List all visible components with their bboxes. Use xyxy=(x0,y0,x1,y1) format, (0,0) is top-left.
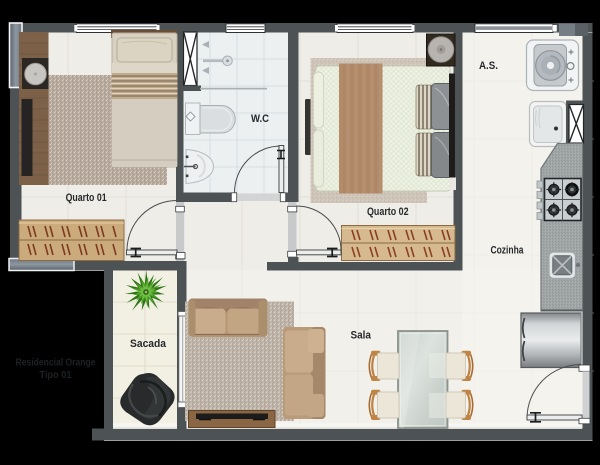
svg-text:Tipo 01: Tipo 01 xyxy=(40,370,72,381)
svg-text:Quarto 01: Quarto 01 xyxy=(66,192,107,204)
svg-text:Cozinha: Cozinha xyxy=(491,245,525,257)
svg-text:W.C: W.C xyxy=(251,113,269,125)
svg-text:Sacada: Sacada xyxy=(130,338,167,350)
svg-text:Residencial Orange: Residencial Orange xyxy=(16,358,96,369)
svg-text:Quarto 02: Quarto 02 xyxy=(367,206,409,218)
svg-text:Sala: Sala xyxy=(350,330,371,342)
svg-text:A.S.: A.S. xyxy=(479,60,498,72)
